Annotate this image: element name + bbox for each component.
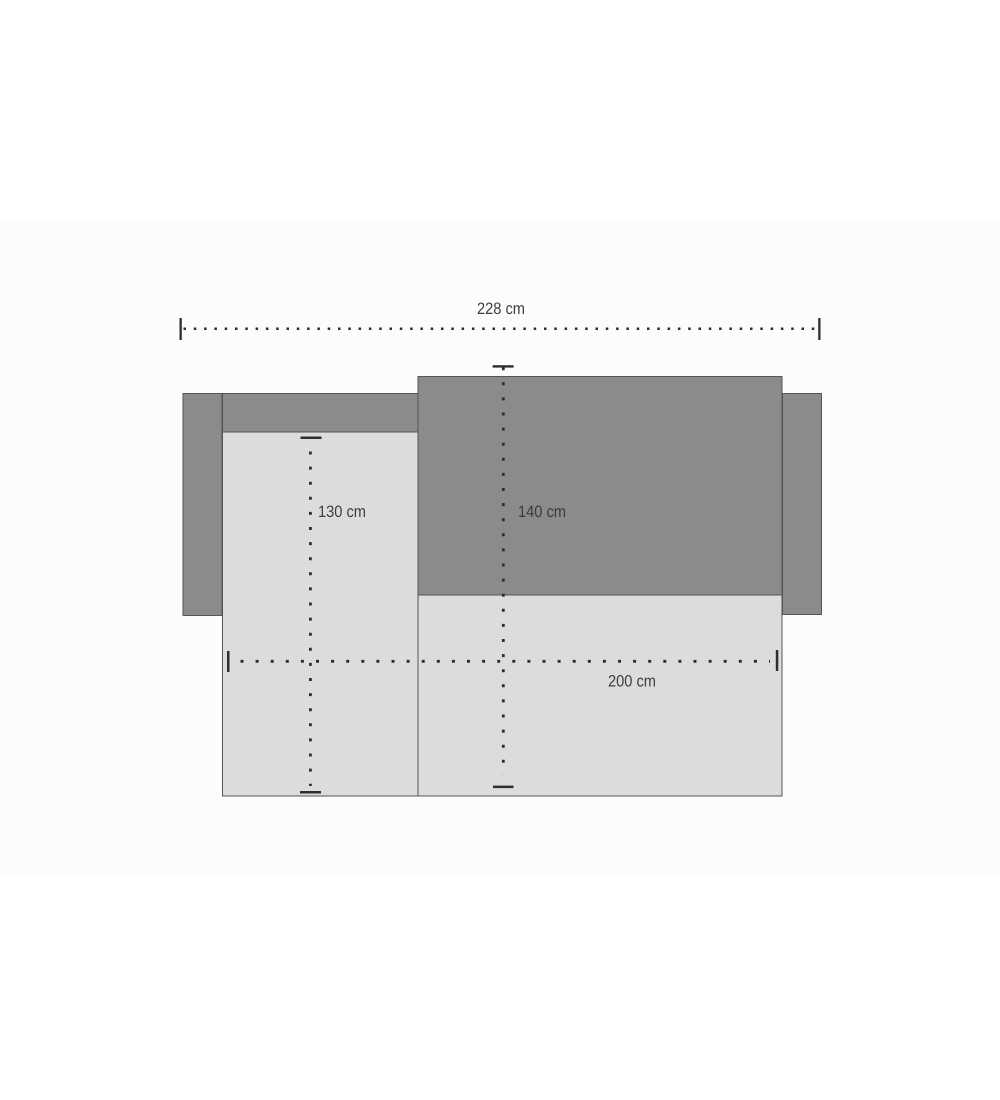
svg-text:228 cm: 228 cm [477, 300, 525, 318]
svg-text:200 cm: 200 cm [608, 672, 656, 690]
svg-text:140 cm: 140 cm [518, 503, 566, 521]
svg-text:130 cm: 130 cm [318, 503, 366, 521]
